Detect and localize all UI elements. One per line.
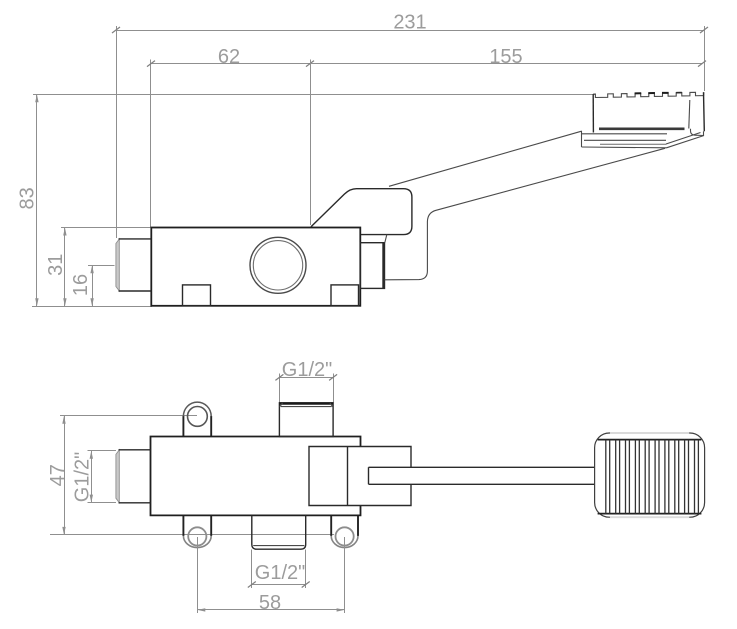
svg-text:231: 231 — [393, 12, 426, 34]
svg-text:G1/2": G1/2" — [71, 452, 93, 502]
svg-text:G1/2": G1/2" — [255, 562, 305, 584]
svg-text:83: 83 — [16, 187, 38, 209]
svg-text:31: 31 — [45, 254, 67, 276]
svg-text:58: 58 — [259, 592, 281, 614]
svg-text:47: 47 — [47, 464, 69, 486]
svg-text:62: 62 — [218, 46, 240, 68]
svg-text:16: 16 — [70, 274, 92, 296]
svg-text:G1/2": G1/2" — [282, 359, 332, 381]
svg-text:155: 155 — [489, 46, 522, 68]
